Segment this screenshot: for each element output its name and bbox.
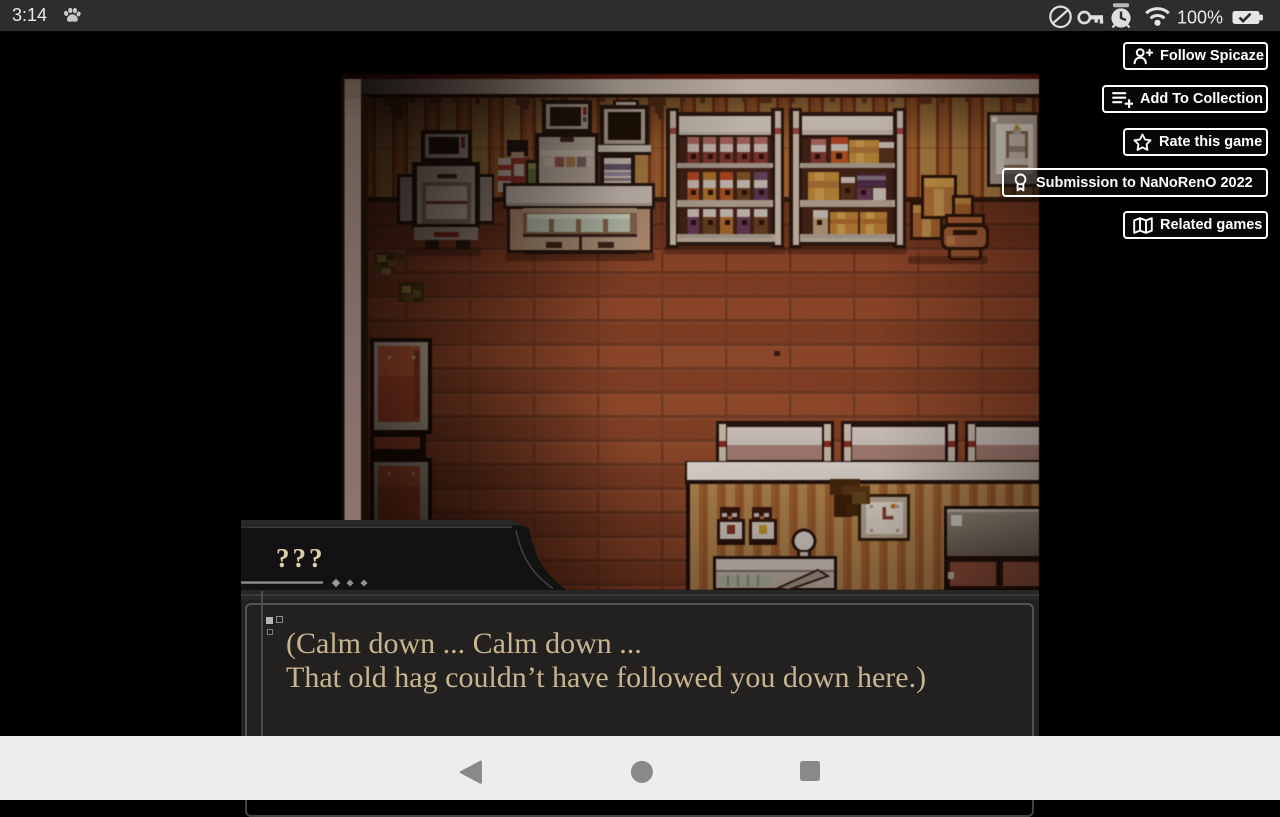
svg-text:100%: 100% — [1177, 8, 1223, 28]
svg-text:???: ??? — [276, 543, 326, 573]
